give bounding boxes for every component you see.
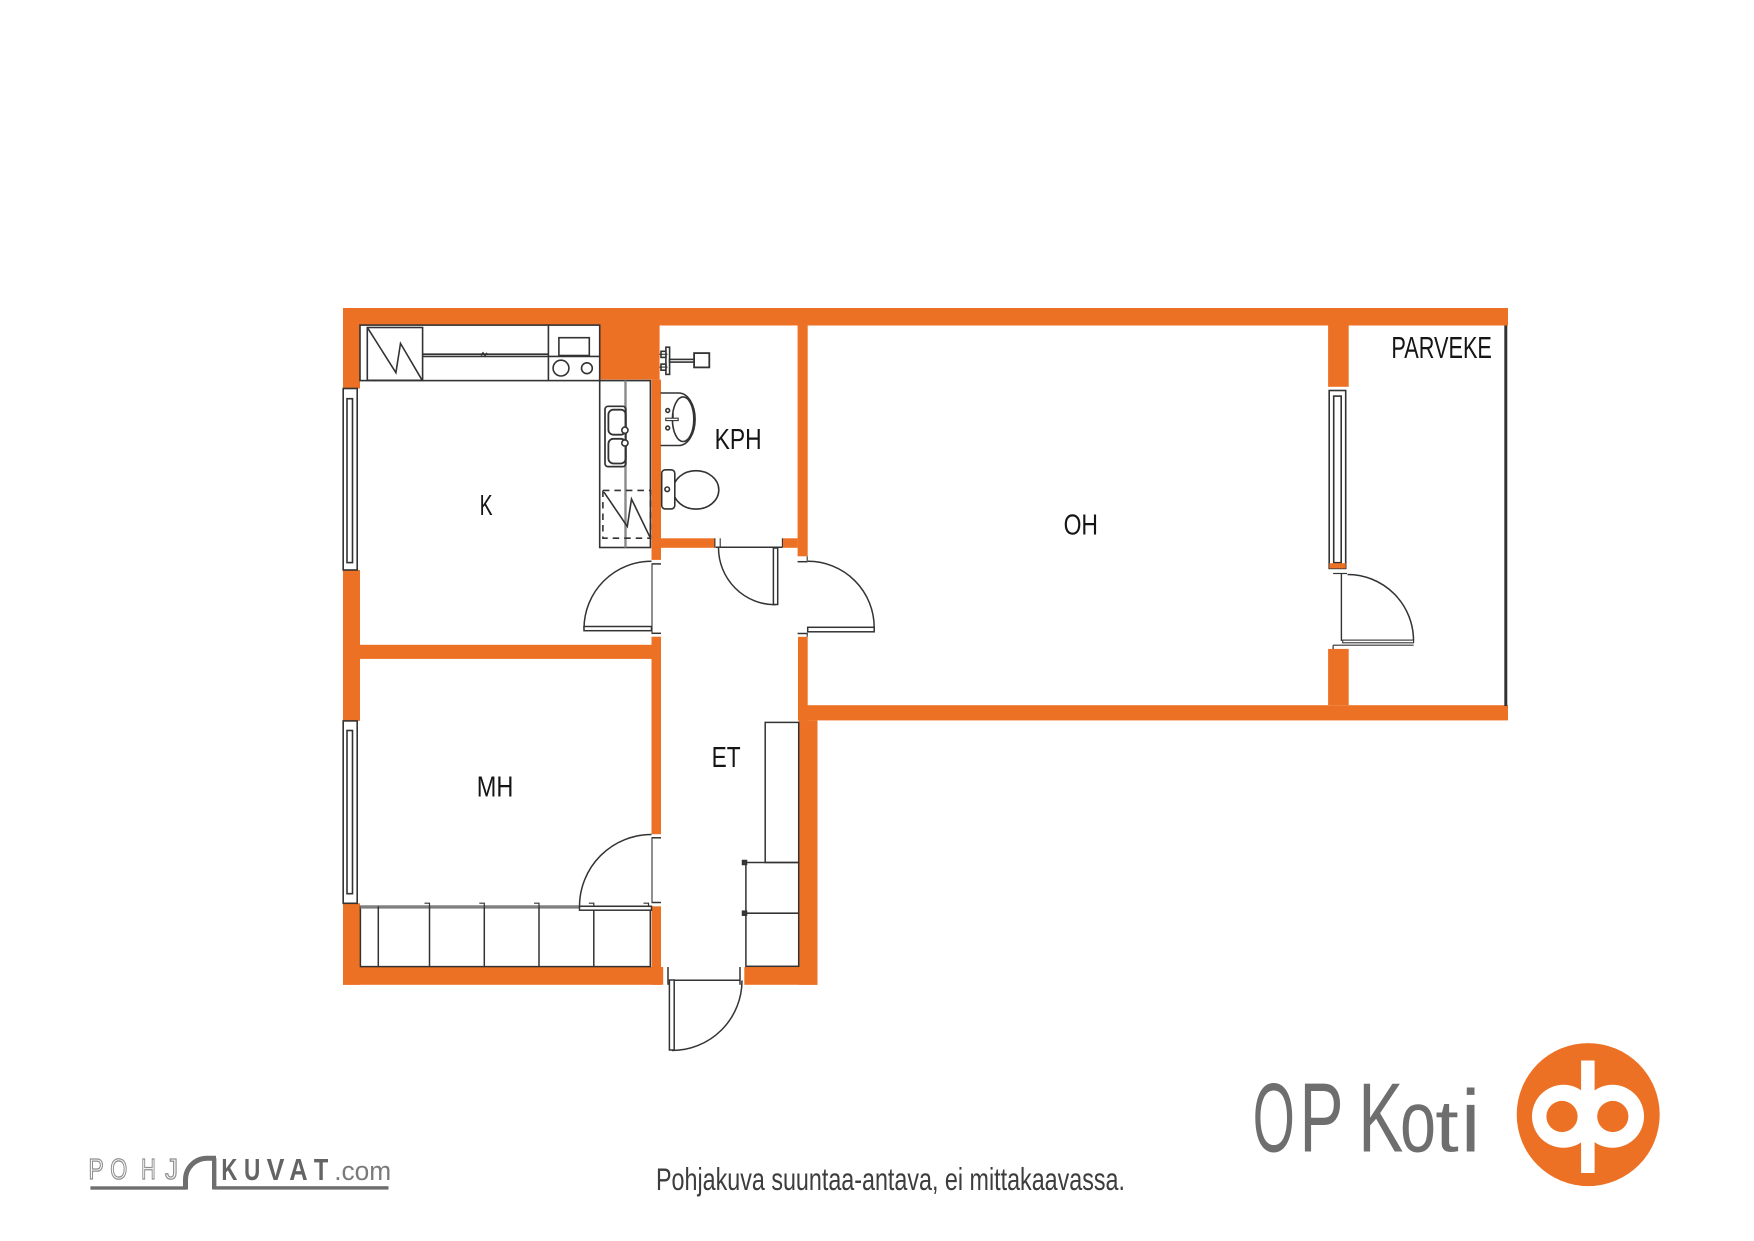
svg-text:o: o xyxy=(1400,1071,1436,1170)
svg-text:Pohjakuva suuntaa-antava, ei m: Pohjakuva suuntaa-antava, ei mittakaavas… xyxy=(656,1161,1125,1197)
svg-text:J: J xyxy=(165,1153,178,1185)
svg-text:MH: MH xyxy=(477,771,514,803)
svg-text:O: O xyxy=(110,1153,127,1185)
svg-text:P: P xyxy=(89,1153,104,1185)
svg-text:K: K xyxy=(480,490,493,522)
svg-text:i: i xyxy=(1461,1071,1481,1170)
svg-text:O: O xyxy=(1253,1062,1295,1172)
svg-text:P: P xyxy=(1300,1062,1344,1172)
svg-text:PARVEKE: PARVEKE xyxy=(1391,331,1492,365)
svg-text:.com: .com xyxy=(334,1156,391,1186)
svg-text:A: A xyxy=(289,1152,307,1187)
svg-text:t: t xyxy=(1435,1086,1459,1167)
svg-text:T: T xyxy=(314,1152,328,1187)
svg-text:U: U xyxy=(244,1152,260,1187)
svg-text:OH: OH xyxy=(1064,510,1098,542)
svg-text:K: K xyxy=(1358,1062,1403,1172)
svg-text:H: H xyxy=(141,1153,156,1185)
svg-text:V: V xyxy=(267,1152,285,1187)
svg-text:ET: ET xyxy=(712,742,741,774)
svg-text:KPH: KPH xyxy=(715,424,762,456)
svg-text:K: K xyxy=(221,1152,237,1187)
